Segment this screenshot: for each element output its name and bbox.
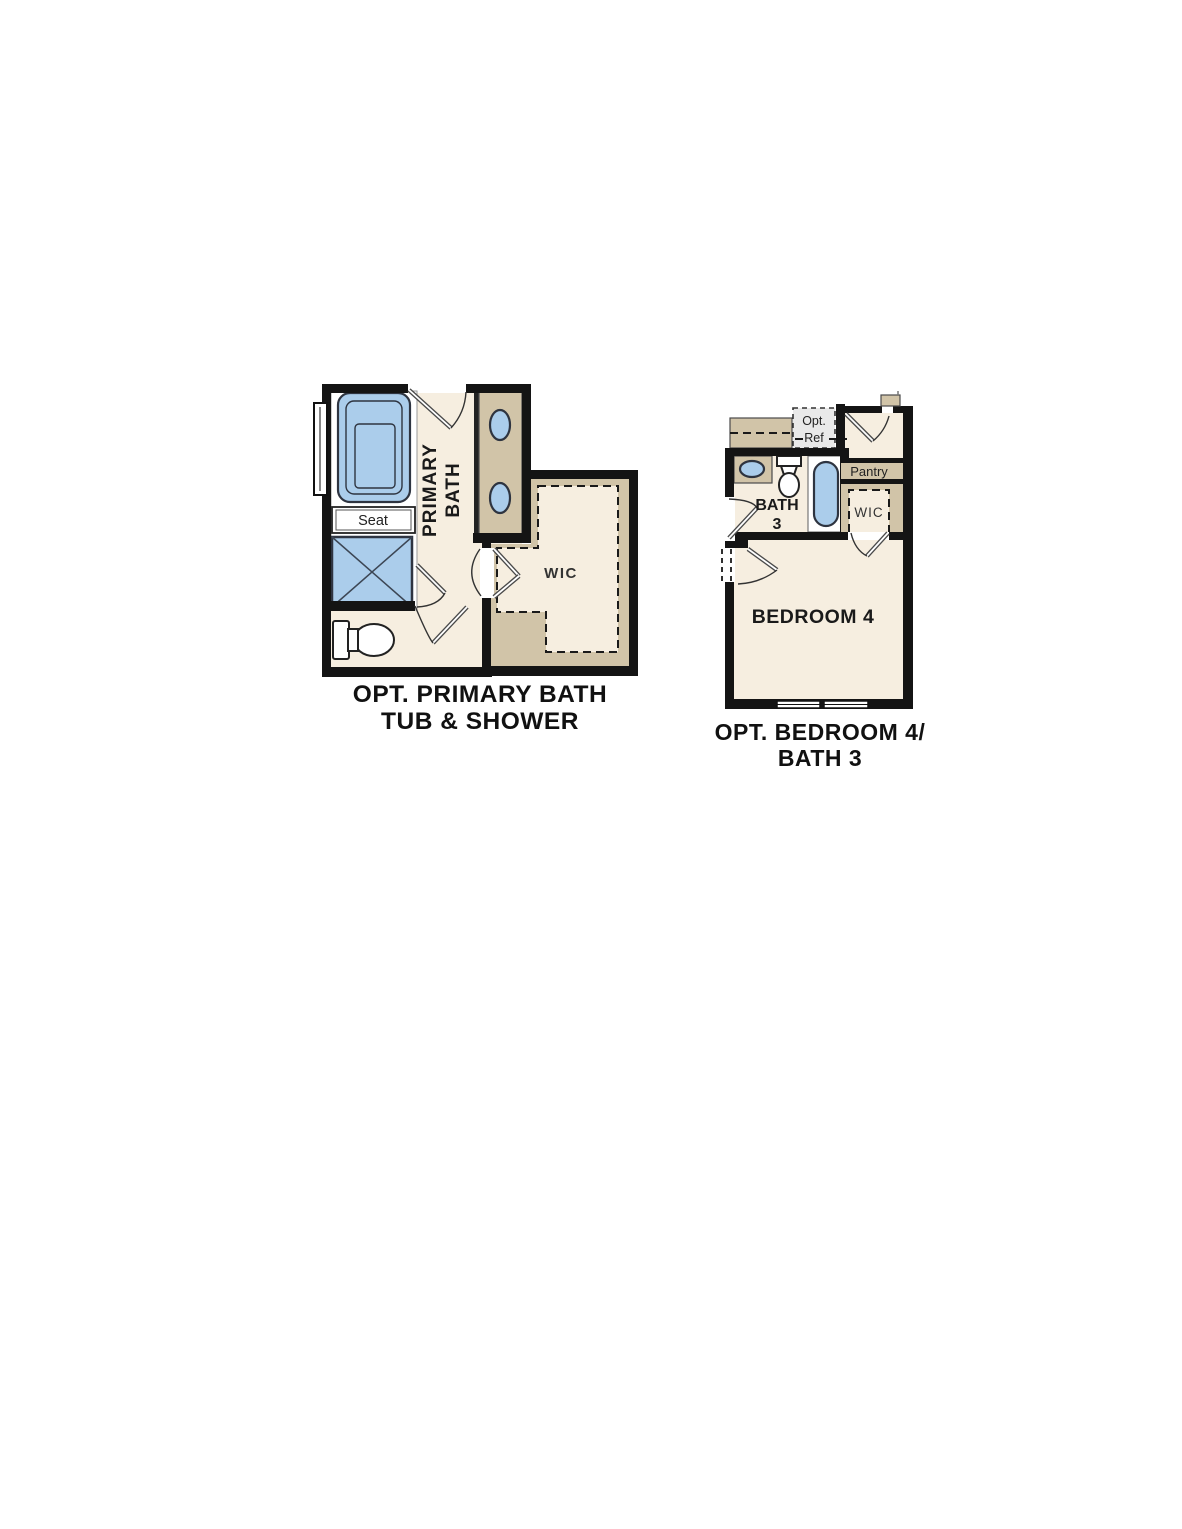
svg-text:OPT. PRIMARY BATH: OPT. PRIMARY BATH bbox=[353, 681, 607, 708]
svg-text:3: 3 bbox=[773, 516, 782, 533]
svg-text:PRIMARY: PRIMARY bbox=[420, 443, 441, 537]
window bbox=[314, 403, 327, 495]
bedroom4-label: BEDROOM 4 bbox=[752, 606, 875, 628]
opt-ref-label-2: Ref bbox=[804, 431, 824, 445]
primary-bath-plan: Seat bbox=[314, 384, 638, 735]
wic-label: WIC bbox=[544, 565, 578, 582]
opt-ref-label-1: Opt. bbox=[802, 414, 826, 428]
bedroom4-caption: OPT. BEDROOM 4/ BATH 3 bbox=[715, 719, 926, 771]
svg-text:OPT. BEDROOM 4/: OPT. BEDROOM 4/ bbox=[715, 719, 926, 745]
svg-text:BATH 3: BATH 3 bbox=[778, 745, 862, 771]
svg-text:BATH: BATH bbox=[443, 462, 464, 517]
bedroom-door-opening bbox=[724, 548, 735, 582]
bath3-tub bbox=[808, 456, 844, 532]
vanity bbox=[474, 390, 522, 535]
primary-bath-caption: OPT. PRIMARY BATH TUB & SHOWER bbox=[353, 681, 607, 735]
bathtub bbox=[338, 393, 410, 502]
shower-seat: Seat bbox=[332, 507, 415, 533]
floorplan-page: Seat bbox=[0, 0, 1182, 1529]
wic-label: WIC bbox=[854, 505, 883, 520]
floorplans-canvas: Seat bbox=[0, 0, 1182, 1529]
wic-door-opening bbox=[480, 548, 494, 598]
upper-cabinet bbox=[881, 395, 900, 406]
sink-bottom bbox=[490, 483, 510, 513]
toilet bbox=[333, 621, 394, 659]
bath3-vanity bbox=[734, 456, 772, 483]
bath3-sink bbox=[740, 461, 764, 477]
svg-text:TUB & SHOWER: TUB & SHOWER bbox=[381, 708, 579, 735]
pantry-label: Pantry bbox=[850, 464, 888, 479]
kitchen-counter bbox=[730, 418, 792, 448]
shower bbox=[332, 537, 412, 607]
toilet-room-wall bbox=[322, 601, 415, 611]
bedroom4-plan: Opt. Ref bbox=[715, 391, 926, 771]
seat-label: Seat bbox=[358, 513, 388, 529]
sink-top bbox=[490, 410, 510, 440]
svg-text:BATH: BATH bbox=[755, 497, 798, 514]
